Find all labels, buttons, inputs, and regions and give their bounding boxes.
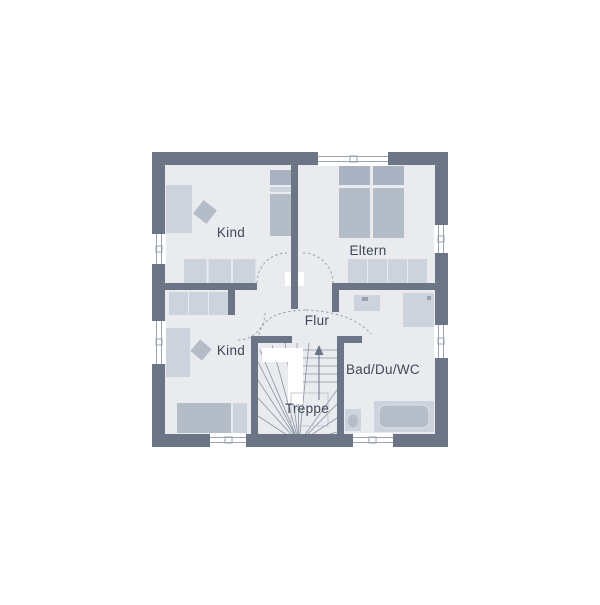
room-label-treppe: Treppe (285, 401, 329, 416)
door-jamb (298, 272, 304, 286)
bathtub (374, 401, 434, 432)
wall-kind-eltern-divider (291, 165, 298, 309)
wall-stair-right (337, 336, 344, 434)
room-label-kind-bottom: Kind (217, 343, 245, 358)
window (434, 225, 448, 253)
wardrobe (169, 292, 228, 315)
room-label-bad: Bad/Du/WC (346, 362, 420, 377)
shower-drain (427, 296, 431, 300)
bed-mattress (270, 194, 291, 236)
wardrobe (184, 259, 256, 283)
window (152, 321, 166, 364)
window (210, 433, 246, 447)
window (318, 152, 388, 166)
wall-flur-stub (228, 290, 235, 315)
wall-eltern-bad (332, 283, 435, 290)
bed (166, 185, 192, 233)
bed (166, 328, 190, 377)
wall-bad-entry (344, 336, 362, 343)
door-jamb (285, 272, 291, 286)
floor-plan: Kind Eltern Flur Kind Bad/Du/WC Treppe (0, 0, 600, 600)
toilet (345, 409, 361, 431)
bed-edge (270, 187, 291, 192)
room-label-eltern: Eltern (349, 243, 386, 258)
window (353, 433, 393, 447)
bed-pillow (233, 403, 247, 433)
room-label-kind-top: Kind (217, 225, 245, 240)
wall-stair-top (258, 336, 292, 343)
window (152, 234, 166, 264)
bed (177, 403, 247, 433)
bed (270, 170, 291, 236)
window (434, 325, 448, 358)
floor-plan-page: Kind Eltern Flur Kind Bad/Du/WC Treppe (0, 0, 600, 600)
bed-pillow (270, 170, 291, 185)
room-label-flur: Flur (305, 313, 330, 328)
wall-kind-flur (165, 283, 257, 290)
bed-mattress (177, 403, 231, 433)
wall-stair-left (251, 336, 258, 434)
sink-tap (362, 297, 368, 301)
wall-bad-stub (332, 290, 339, 312)
